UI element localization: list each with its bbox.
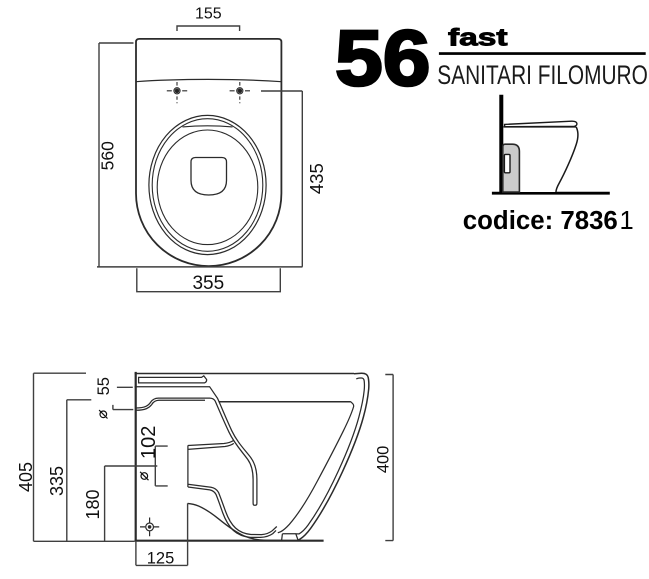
svg-text:102: 102 [138,426,160,459]
svg-text:56: 56 [335,13,431,102]
svg-text:180: 180 [83,489,103,519]
svg-text:125: 125 [147,550,175,568]
svg-text:400: 400 [374,446,392,474]
svg-text:55: 55 [95,377,113,395]
svg-text:405: 405 [16,462,36,492]
svg-text:435: 435 [306,163,327,194]
svg-text:1: 1 [620,207,634,235]
svg-text:SANITARI FILOMURO: SANITARI FILOMURO [437,60,648,90]
svg-text:335: 335 [47,466,67,496]
svg-text:560: 560 [98,141,118,170]
svg-text:155: 155 [195,5,222,22]
svg-text:fast: fast [448,24,508,51]
svg-text:codice: 7836: codice: 7836 [463,207,618,235]
svg-text:355: 355 [192,273,224,294]
